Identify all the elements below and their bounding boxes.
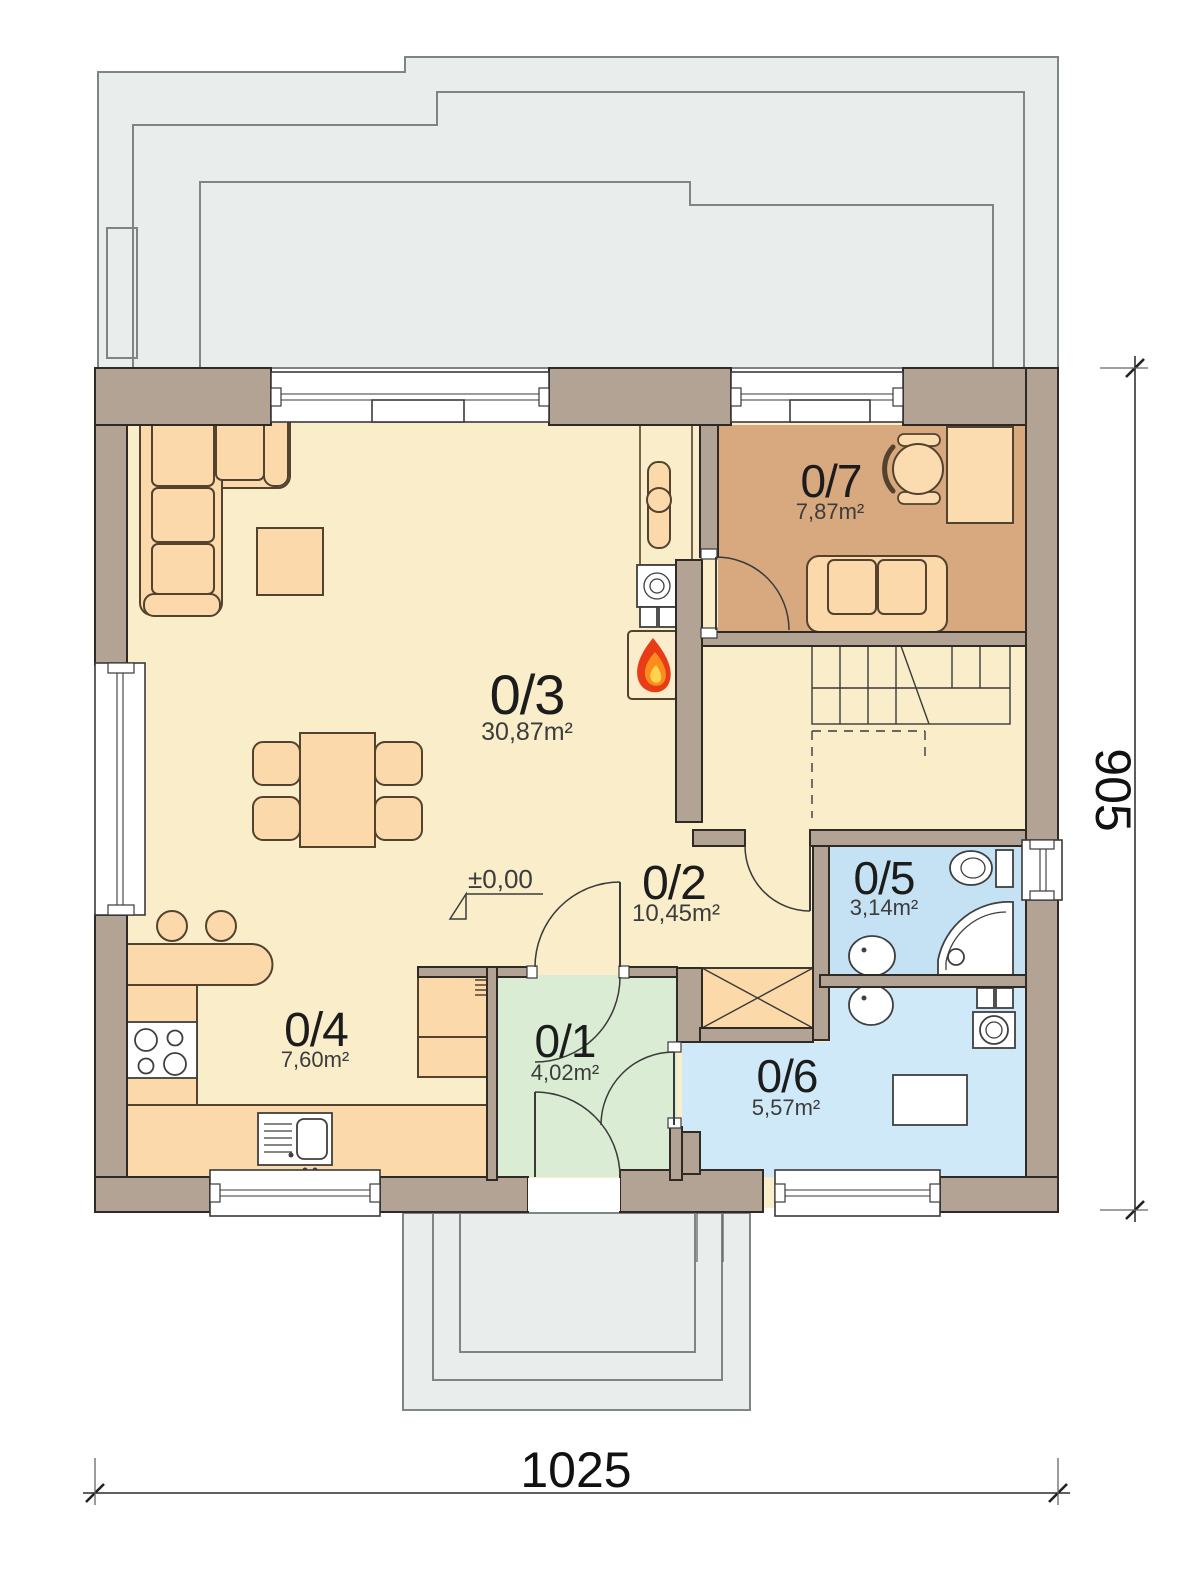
cooktop — [127, 1022, 197, 1078]
kitchen-sink — [258, 1113, 332, 1173]
sofa-armrest — [144, 594, 220, 616]
sofa-cushion — [878, 560, 926, 614]
bathroom-sink — [849, 936, 895, 976]
window-bathroom-right — [1022, 840, 1062, 900]
dining-chair — [253, 742, 300, 785]
coffee-table — [257, 528, 323, 595]
wall-top-mid — [549, 368, 731, 425]
flue-vent — [640, 607, 657, 627]
wall-bottom-left — [95, 1177, 210, 1212]
chimney-flue — [637, 565, 678, 607]
wall-bath-top-left — [693, 830, 745, 846]
floor-plan-drawing: 0/1 0/2 0/3 0/4 0/5 0/6 0/7 4,02m² 10,45… — [0, 0, 1200, 1569]
wall-chimney — [676, 560, 702, 822]
room-area-04: 7,60m² — [281, 1047, 349, 1072]
dimension-bottom: 1025 — [83, 1442, 1070, 1505]
room-area-01: 4,02m² — [531, 1060, 599, 1085]
window-living-left — [95, 663, 145, 915]
dimension-width-label: 1025 — [520, 1442, 631, 1498]
desk — [947, 427, 1013, 523]
sofa-cushion — [152, 544, 214, 594]
kitchen-peninsula — [127, 944, 273, 985]
wall-top-left — [95, 368, 271, 425]
sofa-cushion — [152, 488, 214, 542]
bar-stool — [157, 911, 187, 941]
floor-plan-page: 0/1 0/2 0/3 0/4 0/5 0/6 0/7 4,02m² 10,45… — [0, 0, 1200, 1569]
terrace-outline — [98, 57, 1058, 368]
wall-wardrobe-left — [677, 968, 702, 1042]
electrical-panel — [996, 988, 1013, 1008]
wall-wardrobe-bottom — [700, 1028, 813, 1042]
level-marker-text: ±0,00 — [468, 864, 533, 894]
window-living-top — [271, 372, 549, 422]
wall-bath-top — [810, 830, 1026, 846]
bar-stool — [206, 911, 236, 941]
dining-chair — [375, 797, 422, 840]
terrace — [98, 57, 1058, 368]
toilet — [950, 850, 1013, 887]
sofa-cushion — [216, 420, 264, 480]
room-area-02: 10,45m² — [632, 900, 720, 927]
wall-bottom-mid — [380, 1177, 528, 1212]
wall-right-lower — [1026, 898, 1058, 1212]
entrance-porch — [403, 1213, 750, 1410]
wall-kitchen-entry — [487, 967, 497, 1180]
room-area-05: 3,14m² — [850, 895, 918, 920]
utility-sink — [849, 985, 893, 1025]
wall-entry-utility — [670, 1127, 682, 1180]
room-area-03: 30,87m² — [481, 718, 573, 746]
door-threshold — [528, 1178, 620, 1211]
window-kitchen-bottom — [210, 1170, 380, 1216]
fridge-cabinet — [418, 975, 487, 1077]
dimension-right: 905 — [1085, 356, 1148, 1222]
electrical-panel — [977, 988, 994, 1008]
wall-right-upper — [1026, 368, 1058, 843]
flue-vent — [659, 607, 676, 627]
dimension-height-label: 905 — [1085, 748, 1141, 831]
wall-office-bottom — [700, 632, 1026, 646]
wall-entry-top-left — [418, 967, 535, 977]
office-sofa — [807, 556, 947, 632]
dining-chair — [253, 797, 300, 840]
room-area-06: 5,57m² — [752, 1095, 820, 1120]
wall-hall-bath — [813, 846, 829, 1040]
utility-table — [893, 1075, 967, 1125]
wall-bottom-right — [940, 1177, 1058, 1212]
counter-circle — [647, 488, 671, 512]
room-number-03: 0/3 — [490, 663, 565, 726]
dining-table — [300, 733, 375, 847]
wall-left-lower — [95, 915, 127, 1177]
room-area-07: 7,87m² — [796, 499, 864, 524]
wall-office-left — [700, 425, 718, 557]
dining-chair — [375, 742, 422, 785]
built-in-wardrobe — [702, 968, 813, 1028]
wall-bath-utility — [820, 975, 1026, 987]
wall-left-upper — [95, 425, 127, 665]
boiler — [973, 1012, 1015, 1048]
sofa-cushion — [152, 420, 214, 486]
window-office-top — [731, 372, 903, 422]
window-utility-bottom — [775, 1170, 940, 1216]
sofa-cushion — [828, 560, 876, 614]
